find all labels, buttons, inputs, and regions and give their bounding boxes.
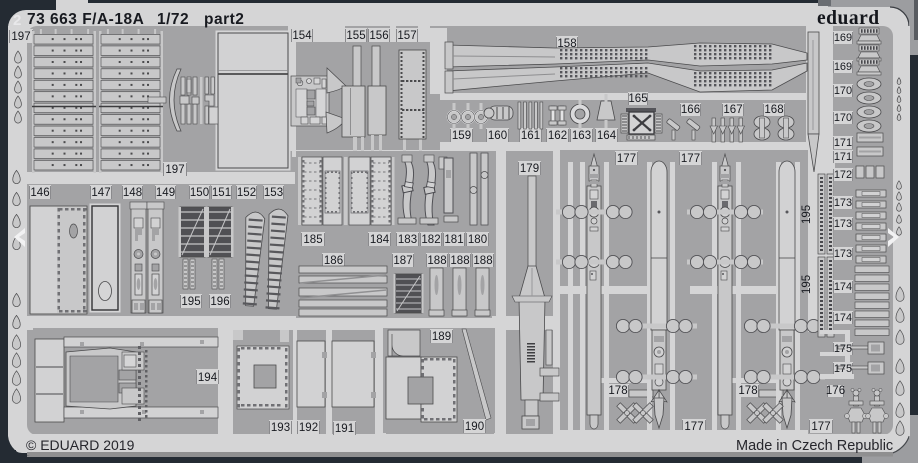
svg-text:1/72: 1/72 [157, 11, 189, 28]
svg-text:177: 177 [811, 421, 830, 433]
svg-text:173: 173 [834, 248, 852, 260]
svg-text:151: 151 [212, 187, 231, 199]
svg-text:178: 178 [738, 385, 757, 397]
svg-text:193: 193 [271, 422, 290, 434]
svg-text:195: 195 [801, 205, 813, 224]
svg-text:160: 160 [488, 130, 507, 142]
svg-text:173: 173 [834, 197, 852, 209]
svg-text:149: 149 [156, 187, 175, 199]
svg-text:part2: part2 [204, 11, 244, 28]
svg-text:187: 187 [393, 255, 412, 267]
svg-text:173: 173 [834, 218, 852, 230]
svg-text:155: 155 [346, 30, 365, 42]
svg-text:178: 178 [608, 385, 627, 397]
svg-text:184: 184 [370, 234, 390, 246]
svg-text:188: 188 [450, 255, 469, 267]
svg-text:158: 158 [557, 38, 576, 50]
svg-text:170: 170 [834, 112, 852, 124]
svg-text:169: 169 [834, 32, 852, 44]
svg-text:152: 152 [237, 187, 256, 199]
svg-text:197: 197 [11, 31, 30, 43]
svg-text:167: 167 [723, 104, 742, 116]
svg-text:147: 147 [91, 187, 110, 199]
svg-text:174: 174 [834, 312, 852, 324]
svg-text:165: 165 [628, 93, 647, 105]
svg-text:182: 182 [421, 234, 440, 246]
svg-text:177: 177 [617, 153, 636, 165]
svg-text:153: 153 [264, 187, 283, 199]
svg-text:171: 171 [834, 137, 852, 149]
svg-text:73 663 F/A-18A: 73 663 F/A-18A [27, 11, 144, 28]
svg-text:197: 197 [165, 164, 184, 176]
svg-text:166: 166 [681, 104, 700, 116]
svg-text:169: 169 [834, 61, 852, 73]
svg-text:162: 162 [548, 130, 567, 142]
svg-text:174: 174 [834, 281, 852, 293]
svg-text:185: 185 [303, 234, 322, 246]
svg-text:195: 195 [181, 296, 200, 308]
svg-text:192: 192 [299, 422, 318, 434]
svg-text:186: 186 [324, 255, 343, 267]
svg-text:159: 159 [452, 130, 471, 142]
svg-text:180: 180 [468, 234, 487, 246]
svg-text:eduard: eduard [817, 8, 880, 29]
svg-text:175: 175 [834, 363, 852, 375]
svg-text:161: 161 [521, 130, 540, 142]
svg-text:189: 189 [432, 331, 451, 343]
svg-text:168: 168 [764, 104, 783, 116]
svg-text:Made in Czech Republic: Made in Czech Republic [736, 438, 893, 454]
svg-text:191: 191 [335, 423, 354, 435]
svg-text:188: 188 [427, 255, 446, 267]
svg-text:164: 164 [597, 130, 617, 142]
svg-text:181: 181 [444, 234, 463, 246]
svg-text:157: 157 [397, 30, 416, 42]
svg-text:188: 188 [473, 255, 492, 267]
svg-text:© EDUARD 2019: © EDUARD 2019 [26, 437, 135, 453]
svg-text:163: 163 [572, 130, 591, 142]
svg-text:171: 171 [834, 151, 852, 163]
svg-text:176: 176 [826, 385, 845, 397]
svg-text:177: 177 [681, 153, 700, 165]
svg-text:172: 172 [834, 169, 852, 181]
svg-text:179: 179 [520, 163, 539, 175]
svg-text:190: 190 [465, 421, 484, 433]
svg-text:156: 156 [369, 30, 388, 42]
svg-text:146: 146 [30, 187, 49, 199]
svg-text:183: 183 [398, 234, 417, 246]
svg-text:194: 194 [198, 372, 218, 384]
svg-text:2: 2 [13, 12, 21, 29]
svg-text:195: 195 [801, 275, 813, 294]
svg-text:148: 148 [123, 187, 142, 199]
svg-text:177: 177 [684, 421, 703, 433]
svg-text:150: 150 [190, 187, 209, 199]
svg-text:175: 175 [834, 343, 852, 355]
svg-text:170: 170 [834, 85, 852, 97]
svg-text:196: 196 [210, 296, 229, 308]
svg-text:154: 154 [292, 30, 312, 42]
